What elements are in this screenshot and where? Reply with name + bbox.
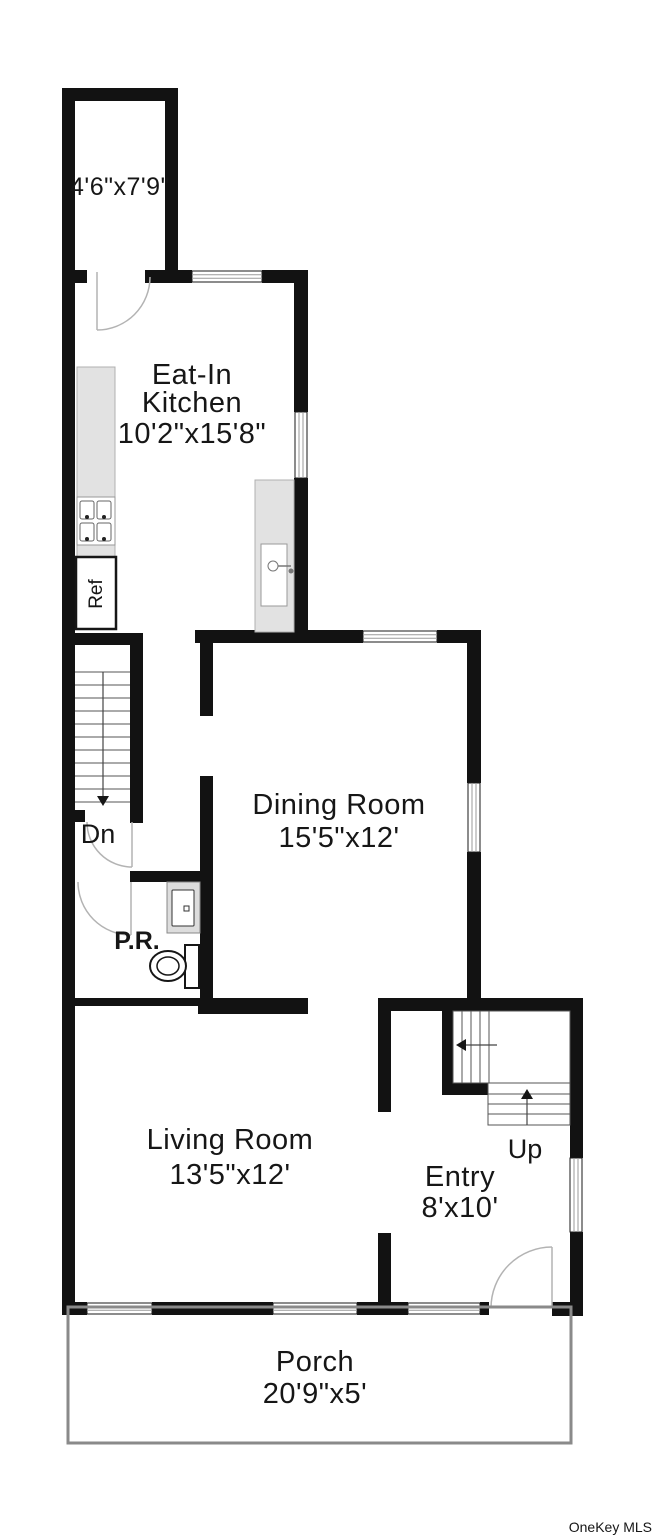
entry-label: Entry (425, 1161, 495, 1193)
porch-label: Porch (276, 1346, 354, 1378)
living-room-label: Living Room (147, 1124, 314, 1156)
closet-door (97, 272, 150, 330)
stairs-up-label: Up (508, 1134, 543, 1164)
entry-dims: 8'x10' (422, 1192, 499, 1224)
down-arrow-icon (97, 672, 109, 806)
watermark: OneKey MLS (569, 1519, 652, 1535)
window (192, 271, 262, 282)
kitchen-dims: 10'2"x15'8" (118, 418, 266, 450)
kitchen-label-line2: Kitchen (142, 387, 242, 419)
window (363, 631, 437, 642)
walls (62, 88, 583, 1316)
closet-dims: 4'6"x7'9" (70, 173, 170, 201)
floor-plan-drawing: Ref (0, 0, 658, 1536)
window (468, 783, 480, 852)
powder-room-vanity-icon (167, 882, 200, 933)
dining-room-dims: 15'5"x12' (278, 822, 399, 854)
stairs-down-label: Dn (81, 819, 116, 849)
refrigerator-label: Ref (86, 579, 107, 609)
dining-room-label: Dining Room (252, 789, 425, 821)
floor-plan: Ref (0, 0, 658, 1536)
living-room-dims: 13'5"x12' (169, 1159, 290, 1191)
powder-room-label: P.R. (114, 927, 159, 955)
front-door (491, 1247, 552, 1308)
stairs-up (453, 1011, 570, 1125)
refrigerator-icon: Ref (76, 557, 116, 629)
window (570, 1158, 582, 1232)
window (295, 412, 307, 478)
stove-icon (77, 497, 115, 545)
porch-dims: 20'9"x5' (263, 1378, 367, 1410)
stairs-down (75, 672, 130, 806)
